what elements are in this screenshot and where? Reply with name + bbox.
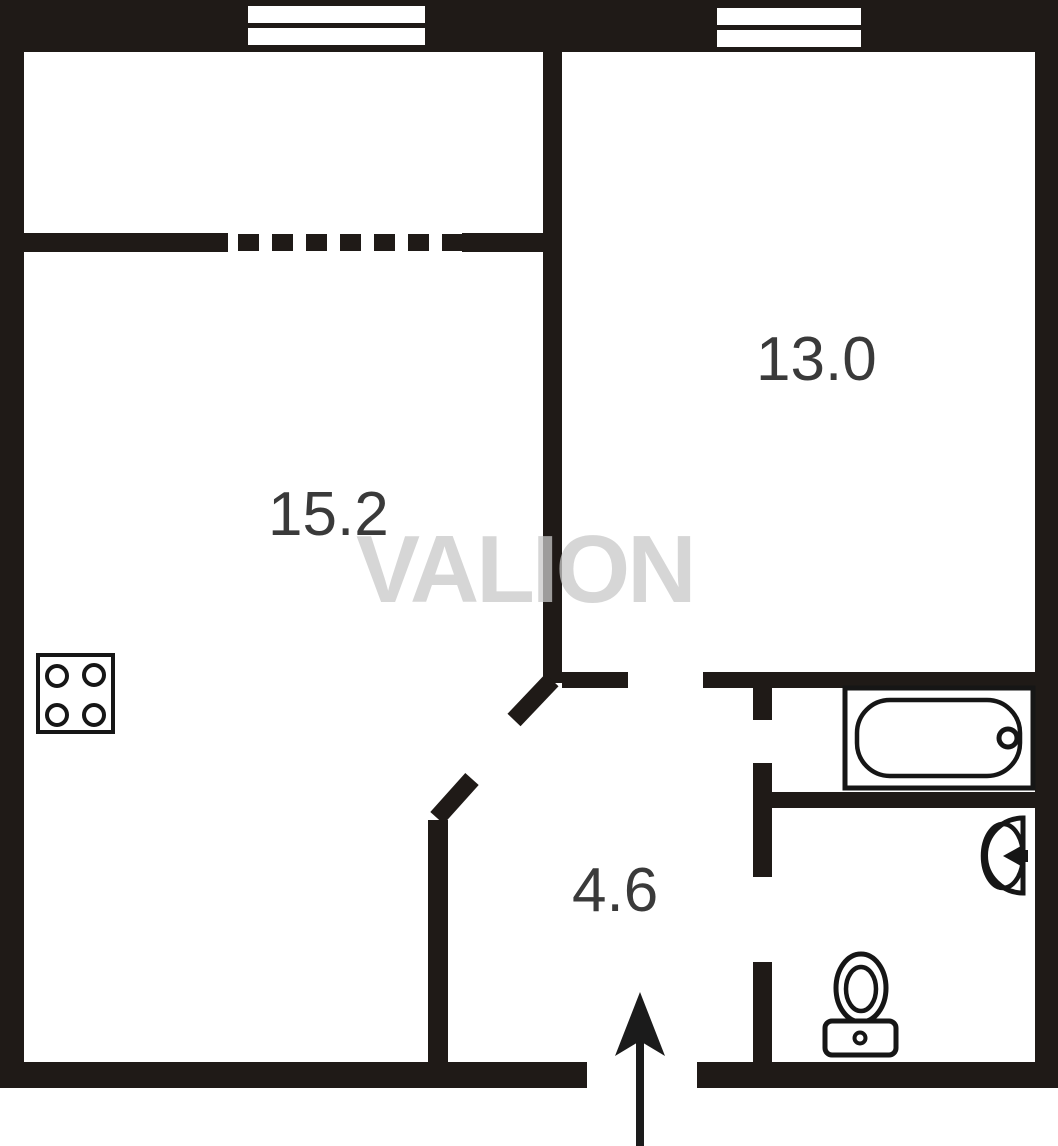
wall-bottom-right bbox=[697, 1062, 1058, 1088]
wall-bath-vertical-b bbox=[753, 763, 772, 877]
window-bar bbox=[248, 28, 425, 45]
window-bar bbox=[717, 30, 861, 47]
wall-bath-vertical-a bbox=[753, 688, 772, 720]
bathtub-icon bbox=[845, 688, 1033, 788]
arrow-stem bbox=[636, 1038, 644, 1146]
wall-left bbox=[0, 0, 24, 1088]
wall-diagonal-lower bbox=[437, 779, 472, 818]
window-bar bbox=[717, 8, 861, 25]
wall-bottom-left bbox=[0, 1062, 587, 1088]
wall-balcony-left bbox=[24, 233, 228, 252]
room-area-label-hallway: 4.6 bbox=[572, 860, 658, 922]
toilet-icon bbox=[825, 954, 896, 1055]
sink-icon bbox=[983, 818, 1028, 893]
entrance-arrow-icon bbox=[615, 992, 665, 1146]
sink-tap-base bbox=[1018, 850, 1028, 862]
wall-hall-left bbox=[428, 820, 448, 1062]
room-area-label-bedroom: 13.0 bbox=[756, 329, 877, 391]
wall-hall-top-stub bbox=[562, 672, 628, 688]
wall-balcony-right bbox=[462, 233, 543, 252]
floor-plan: 15.2 13.0 4.6 VALION bbox=[0, 0, 1058, 1146]
stove-icon bbox=[38, 655, 113, 732]
wall-bath-vertical-c bbox=[753, 962, 772, 1062]
wall-diagonal-upper bbox=[514, 680, 552, 720]
wall-right bbox=[1035, 0, 1058, 1088]
wall-top bbox=[0, 0, 1058, 52]
window-bar bbox=[248, 6, 425, 23]
toilet-tank bbox=[825, 1021, 896, 1055]
watermark-text: VALION bbox=[356, 522, 694, 618]
wall-bath-divider bbox=[772, 792, 1035, 808]
